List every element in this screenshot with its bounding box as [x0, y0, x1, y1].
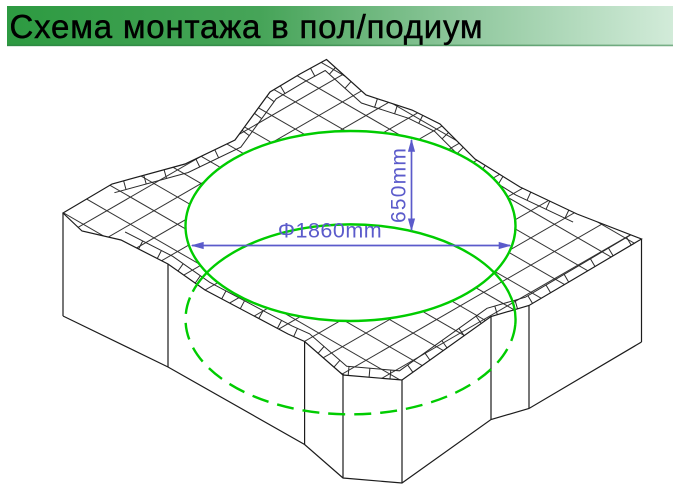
svg-text:650mm: 650mm [388, 147, 411, 223]
svg-text:Φ1860mm: Φ1860mm [278, 219, 382, 243]
svg-text:Схема монтажа в пол/подиум: Схема монтажа в пол/подиум [10, 8, 484, 45]
